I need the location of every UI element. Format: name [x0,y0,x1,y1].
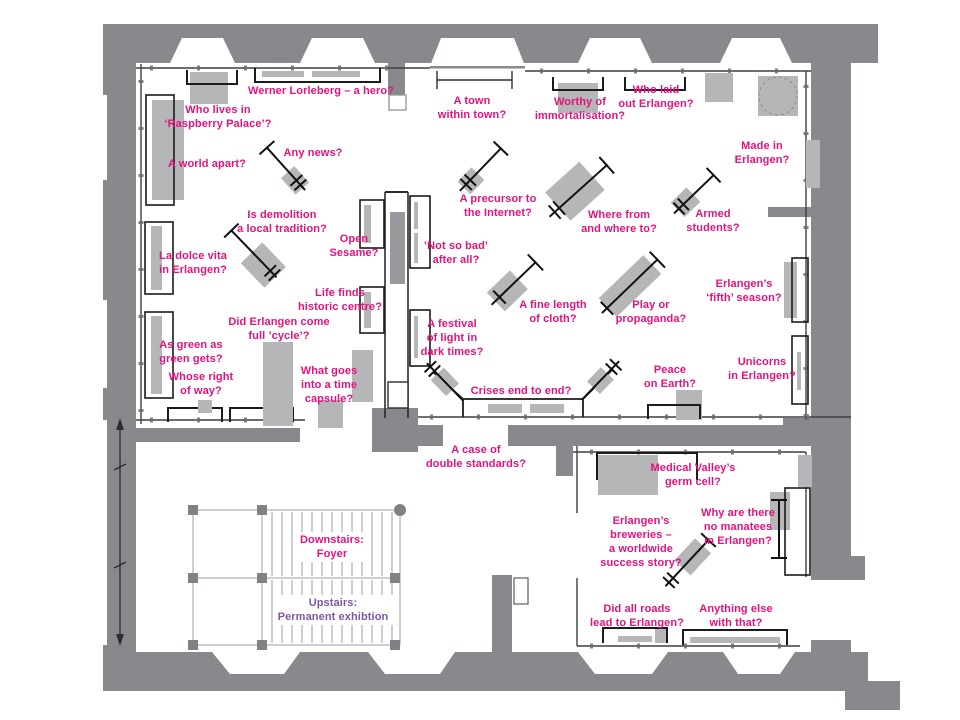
armed-students-display [668,168,721,220]
bottom-left-displays [168,342,343,428]
outer-walls [103,24,900,710]
lower-right-room-displays [514,453,812,645]
medical-valley-display [598,455,658,495]
central-divider-wall [385,95,408,418]
top-wall-displays [187,68,798,116]
left-wall-cases [145,95,184,398]
demolition-display [220,221,286,288]
cycle-display [263,342,293,426]
fine-length-display [484,254,545,314]
breweries-display [658,533,716,593]
interior-walls [136,64,851,646]
crises-left-wing [421,358,469,406]
where-from-display [536,150,618,229]
time-capsule-display [352,350,373,402]
window-openings [100,38,795,674]
play-propaganda-display [594,250,667,321]
staircase [188,504,406,650]
stair-treads-upper [272,512,392,576]
entrance-side-case [389,95,406,110]
entrance-dimension-line [437,71,512,89]
floorplan-drawing [0,0,960,720]
stair-treads-lower [272,580,392,643]
museum-floorplan: Werner Lorleberg – a hero?Who lives in ‘… [0,0,960,720]
diagonal-displays [220,142,721,593]
corner-fixture [758,76,798,116]
entrance-threshold [430,66,525,69]
any-news-display [259,142,311,196]
main-entrance [430,38,525,66]
crises-right-wing [576,356,625,406]
divider-base-case [388,382,408,408]
precursor-display [454,142,508,197]
crises-platform [433,369,613,417]
peace-display [648,390,702,420]
stair-posts [188,504,406,650]
